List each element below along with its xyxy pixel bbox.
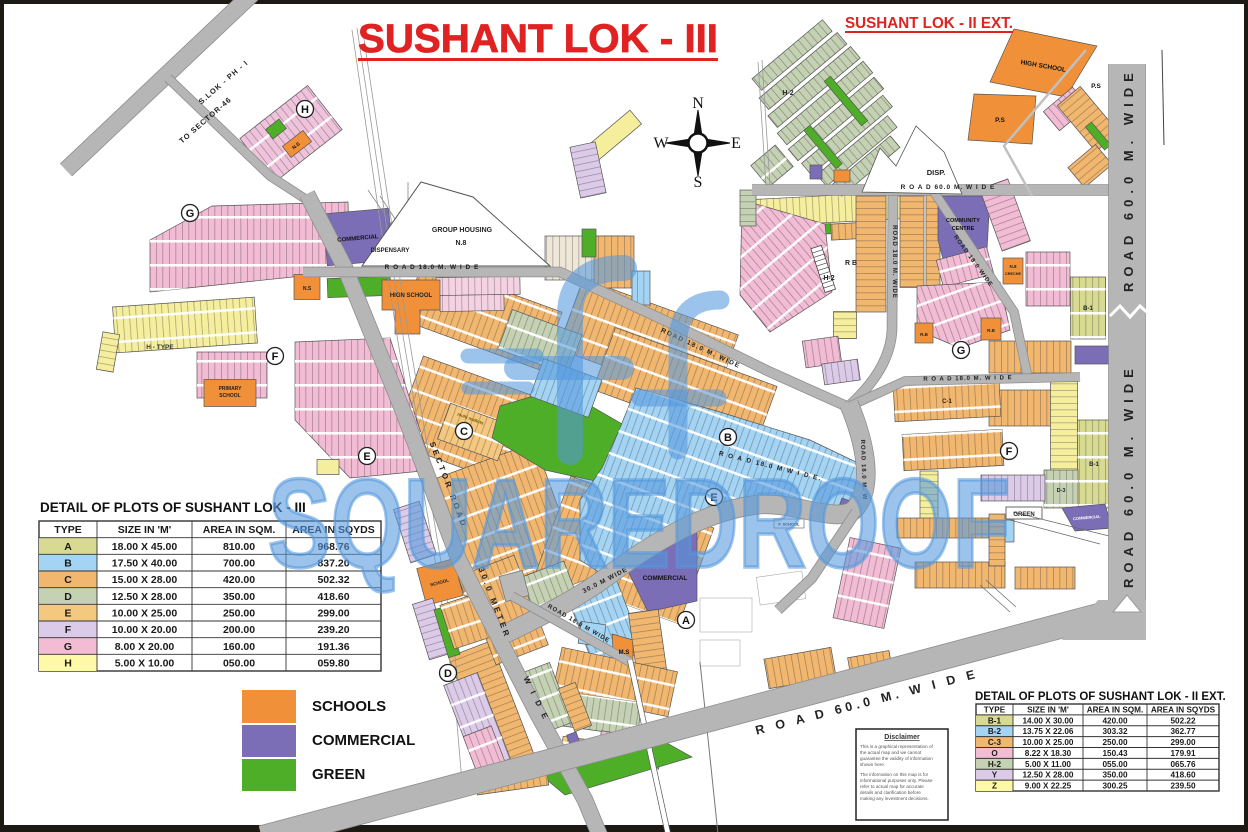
svg-text:Disclaimer: Disclaimer [884,734,920,741]
svg-text:the actual map and we can: the actual map and we cannot [860,750,922,755]
svg-text:GROUP HOUSING: GROUP HOUSING [432,227,493,234]
svg-text:Z: Z [992,782,997,791]
svg-text:shown here.: shown here. [860,762,885,767]
svg-text:details and clarification b: details and clarification before [860,790,921,795]
svg-text:9.00 X 22.25: 9.00 X 22.25 [1025,782,1072,791]
svg-text:065.76: 065.76 [1170,760,1195,769]
svg-text:COMMERCIAL: COMMERCIAL [312,732,415,749]
svg-text:AREA IN SQM.: AREA IN SQM. [203,524,276,536]
svg-text:GREEN: GREEN [1013,512,1034,518]
svg-text:250.00: 250.00 [1102,738,1127,747]
svg-text:SUSHANT LOK - II EXT.: SUSHANT LOK - II EXT. [845,15,1013,32]
svg-text:350.00: 350.00 [223,591,255,603]
svg-text:14.00 X 30.00: 14.00 X 30.00 [1023,716,1074,725]
svg-text:050.00: 050.00 [223,657,255,669]
svg-text:SIZE IN 'M': SIZE IN 'M' [1027,705,1069,714]
svg-text:350.00: 350.00 [1102,771,1127,780]
svg-text:179.91: 179.91 [1170,749,1195,758]
svg-text:N.S: N.S [303,286,312,292]
svg-text:N: N [692,95,704,112]
svg-text:D: D [444,668,452,680]
svg-text:12.50 X 28.00: 12.50 X 28.00 [112,591,178,603]
svg-text:420.00: 420.00 [223,574,255,586]
svg-text:TYPE: TYPE [54,524,81,536]
svg-text:8.22 X 18.30: 8.22 X 18.30 [1025,749,1072,758]
svg-text:17.50 X 40.00: 17.50 X 40.00 [112,557,178,569]
svg-text:150.43: 150.43 [1102,749,1127,758]
svg-text:SCHOOL: SCHOOL [219,393,240,399]
svg-text:059.80: 059.80 [317,657,349,669]
svg-text:PRIMARY: PRIMARY [219,386,243,392]
svg-text:GREEN: GREEN [312,766,365,783]
svg-text:5.00 X 10.00: 5.00 X 10.00 [115,657,175,669]
svg-text:TYPE: TYPE [984,705,1006,714]
svg-text:299.00: 299.00 [317,607,349,619]
svg-text:12.50 X 28.00: 12.50 X 28.00 [1023,771,1074,780]
svg-text:D: D [64,591,72,603]
svg-text:250.00: 250.00 [223,607,255,619]
svg-text:10.00 X 25.00: 10.00 X 25.00 [112,607,178,619]
svg-text:refer to actual map for a: refer to actual map for accurate [860,784,924,789]
svg-text:AREA IN SQM.: AREA IN SQM. [1087,705,1144,714]
svg-text:N.8: N.8 [1009,264,1017,269]
svg-text:E: E [64,607,71,619]
svg-text:SCHOOLS: SCHOOLS [312,698,386,715]
svg-text:C-3: C-3 [988,738,1002,747]
svg-text:The information on this ma: The information on this map is for [860,772,929,777]
svg-text:F: F [65,624,72,636]
svg-text:H-2: H-2 [988,760,1002,769]
svg-text:C: C [460,426,468,438]
svg-text:N.8: N.8 [456,240,467,247]
svg-text:R B: R B [845,260,857,267]
svg-text:P.S: P.S [1091,83,1101,90]
svg-text:362.77: 362.77 [1170,727,1195,736]
svg-text:B-1: B-1 [988,716,1002,725]
svg-text:H - TYPE: H - TYPE [146,344,174,351]
svg-text:160.00: 160.00 [223,641,255,653]
svg-text:guarantee the validity of info: guarantee the validity of information [860,756,933,761]
svg-text:13.75 X 22.06: 13.75 X 22.06 [1023,727,1074,736]
svg-text:18.00 X 45.00: 18.00 X 45.00 [112,541,178,553]
svg-text:making any investment decision: making any investment decisions. [860,796,929,801]
svg-text:R.B: R.B [920,332,929,337]
svg-text:502.22: 502.22 [1170,716,1195,725]
svg-text:informational purposes only. P: informational purposes only. Please [860,778,933,783]
svg-text:SUSHANT LOK - III: SUSHANT LOK - III [358,17,718,61]
svg-text:G: G [957,345,966,357]
svg-text:H-2: H-2 [823,275,834,282]
svg-text:M.S: M.S [619,650,630,656]
svg-text:ROAD 18.0 M. WIDE: ROAD 18.0 M. WIDE [891,225,897,299]
svg-text:P.S: P.S [995,117,1005,124]
svg-text:DISPENSARY: DISPENSARY [371,248,410,254]
svg-text:10.00 X 25.00: 10.00 X 25.00 [1023,738,1074,747]
svg-text:299.00: 299.00 [1170,738,1195,747]
svg-text:O: O [991,749,998,758]
svg-text:H-2: H-2 [782,90,793,97]
svg-text:DISP.: DISP. [927,168,946,177]
svg-text:AREA IN SQYDS: AREA IN SQYDS [1151,705,1216,714]
svg-text:DETAIL OF PLOTS OF SUSHANT LOK: DETAIL OF PLOTS OF SUSHANT LOK - III [40,500,306,515]
svg-text:191.36: 191.36 [317,641,349,653]
svg-text:810.00: 810.00 [223,541,255,553]
svg-text:SIZE IN 'M': SIZE IN 'M' [118,524,171,536]
svg-text:SQUAREDROOF: SQUAREDROOF [268,453,1010,594]
svg-text:A: A [682,615,690,627]
svg-text:420.00: 420.00 [1102,716,1127,725]
svg-text:HIGN SCHOOL: HIGN SCHOOL [390,293,433,299]
svg-text:8.00 X 20.00: 8.00 X 20.00 [115,641,175,653]
svg-text:W: W [653,135,669,152]
svg-text:CENTRE: CENTRE [952,226,975,232]
svg-text:C: C [64,574,72,586]
svg-text:R.B: R.B [987,328,996,333]
svg-text:R O A D 60.0 M. W I D E: R O A D 60.0 M. W I D E [901,184,996,191]
svg-text:A: A [64,541,72,553]
svg-text:239.50: 239.50 [1170,782,1195,791]
svg-text:ROAD 60.0 M. WIDE: ROAD 60.0 M. WIDE [1121,363,1136,588]
svg-text:B-1: B-1 [1083,306,1093,312]
svg-text:S: S [694,174,703,191]
svg-text:This is a graphical representa: This is a graphical representation of [860,744,933,749]
svg-text:B-2: B-2 [988,727,1002,736]
svg-text:G: G [64,641,72,653]
svg-text:303.32: 303.32 [1102,727,1127,736]
svg-text:R O A D 18.0 M. W I D: R O A D 18.0 M. W I D E [385,264,480,271]
svg-text:F: F [272,351,279,363]
svg-text:E: E [731,135,741,152]
svg-text:G: G [186,208,195,220]
svg-text:B: B [724,432,732,444]
svg-text:200.00: 200.00 [223,624,255,636]
svg-text:10.00 X 20.00: 10.00 X 20.00 [112,624,178,636]
svg-text:H: H [301,104,309,116]
svg-text:DETAIL OF PLOTS OF SUSHANT LOK: DETAIL OF PLOTS OF SUSHANT LOK - II EXT. [975,691,1226,703]
svg-text:239.20: 239.20 [317,624,349,636]
svg-text:B: B [64,557,72,569]
svg-text:CRECHE: CRECHE [1005,272,1022,276]
svg-text:C-1: C-1 [942,399,952,405]
svg-text:418.60: 418.60 [1170,771,1195,780]
svg-text:300.25: 300.25 [1102,782,1127,791]
svg-text:B-1: B-1 [1089,462,1099,468]
svg-text:D-3: D-3 [1057,488,1066,494]
svg-text:15.00 X 28.00: 15.00 X 28.00 [112,574,178,586]
svg-text:COMMUNITY: COMMUNITY [946,218,980,224]
svg-text:H: H [64,657,72,669]
svg-text:5.00 X 11.00: 5.00 X 11.00 [1025,760,1071,769]
svg-text:ROAD 60.0 M. WIDE: ROAD 60.0 M. WIDE [1121,67,1136,292]
svg-text:Y: Y [992,771,998,780]
svg-text:700.00: 700.00 [223,557,255,569]
svg-text:055.00: 055.00 [1102,760,1127,769]
